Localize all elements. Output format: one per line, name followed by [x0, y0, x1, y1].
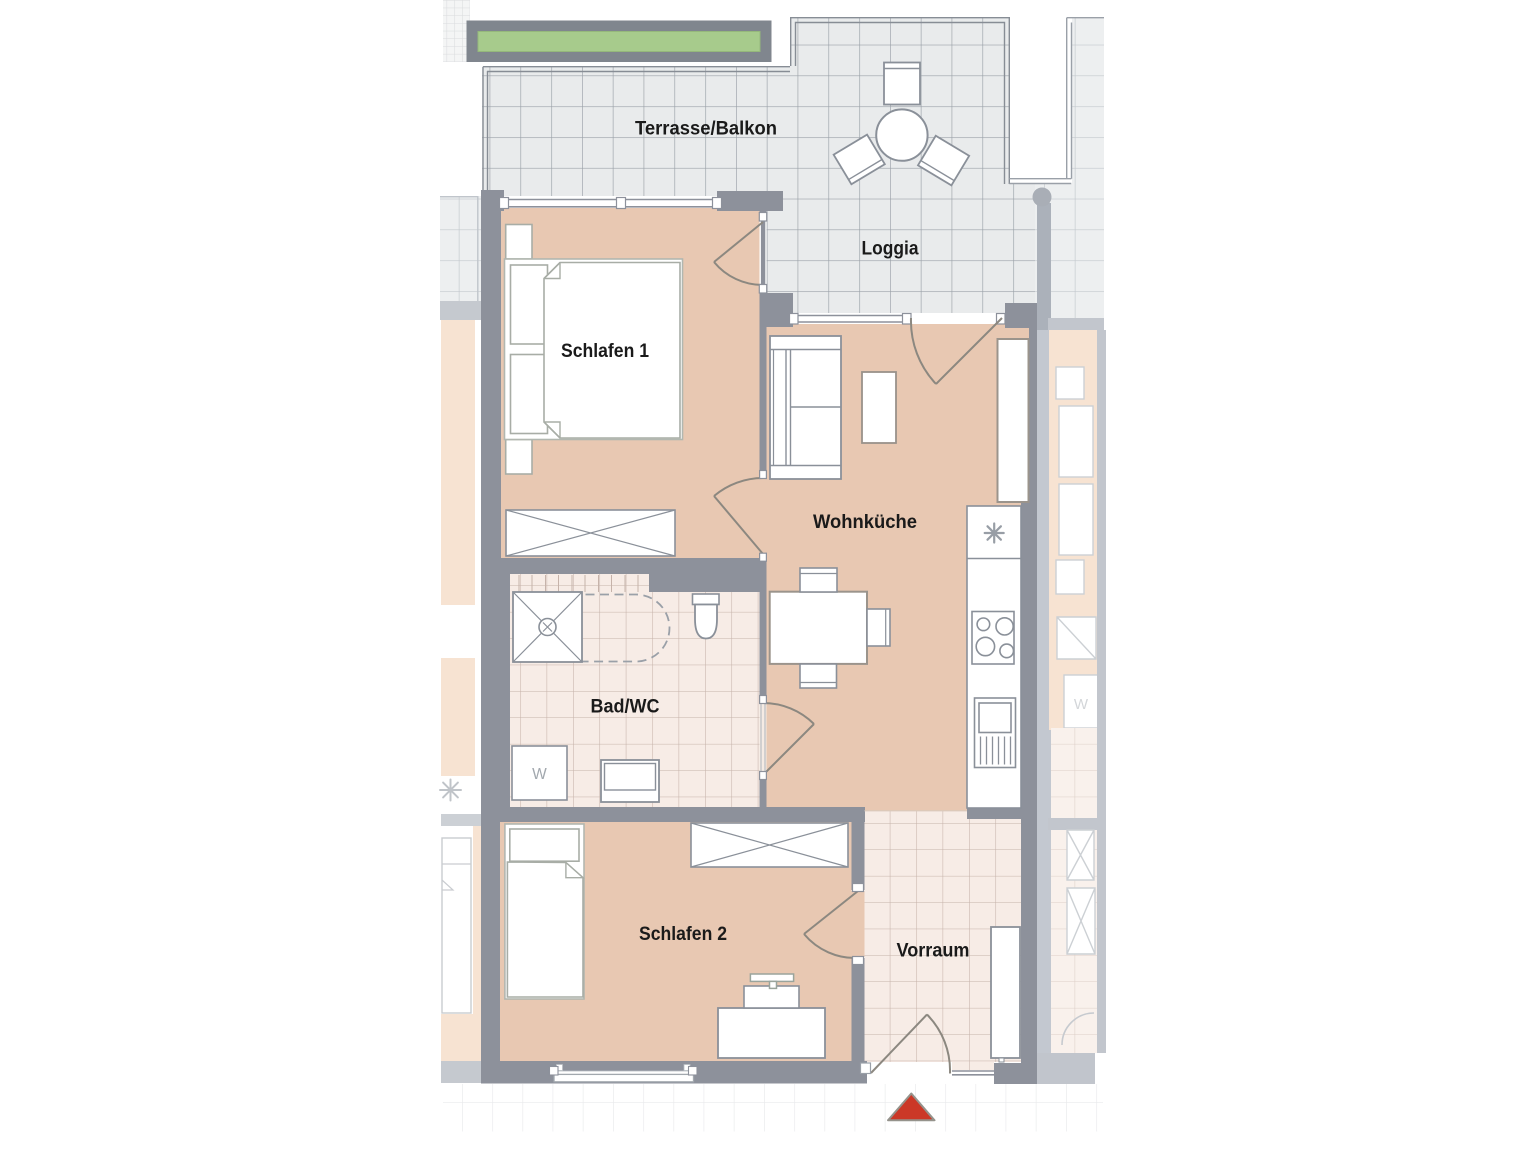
svg-text:W: W [532, 766, 547, 783]
svg-text:Schlafen 2: Schlafen 2 [639, 924, 727, 945]
svg-text:Loggia: Loggia [862, 239, 919, 260]
svg-text:Schlafen 1: Schlafen 1 [561, 341, 649, 362]
svg-text:Terrasse/Balkon: Terrasse/Balkon [635, 119, 777, 140]
svg-text:Wohnküche: Wohnküche [813, 512, 917, 533]
svg-text:W: W [1074, 696, 1089, 713]
svg-text:Vorraum: Vorraum [897, 941, 970, 962]
svg-text:Bad/WC: Bad/WC [591, 697, 660, 718]
